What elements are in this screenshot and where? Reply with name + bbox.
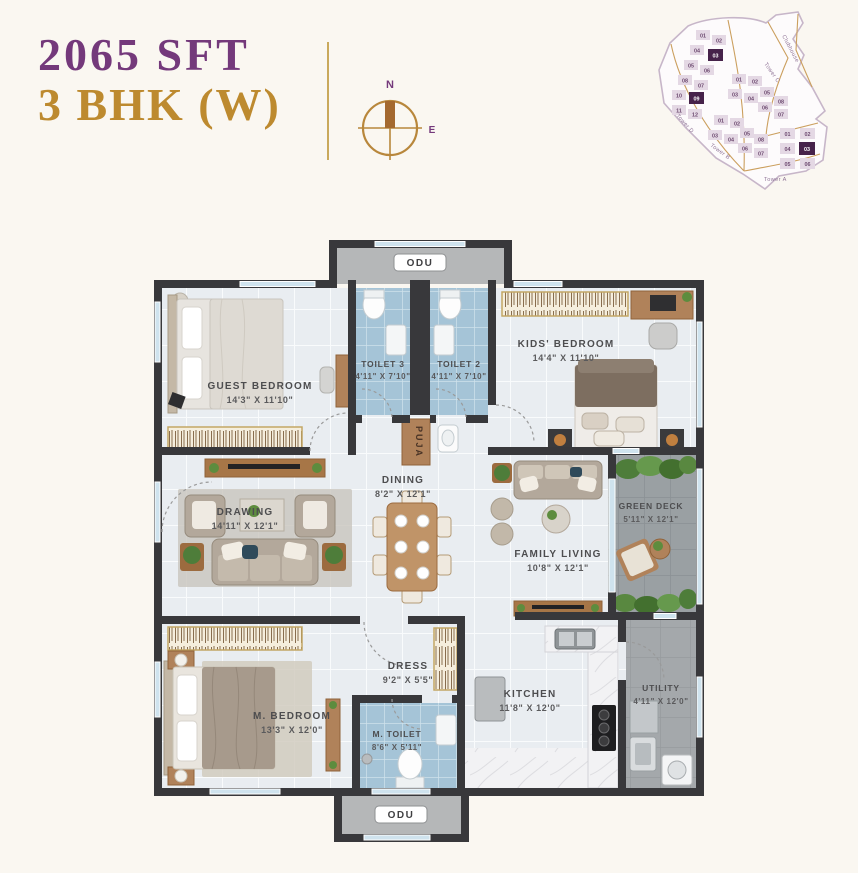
unit-label-highlighted: 03 [804,147,810,153]
console-plant [517,604,525,612]
sink-bowl [577,632,592,646]
master-bedroom-dims: 13'3" X 12'0" [261,725,323,735]
odu-bottom-label: ODU [388,810,415,821]
odu-top-window [375,242,465,247]
console-plant [329,761,337,769]
area-title: 2065 SFT [38,30,281,80]
family-living-dims: 10'8" X 12'1" [527,563,589,573]
tower-a-label: Tower A [764,177,787,183]
guest-pillow [182,307,202,349]
master-lamp [175,770,187,782]
plate [395,567,407,579]
unit-label: 01 [785,132,791,138]
unit-label: 10 [676,94,682,100]
toilet2-label: TOILET 2 [437,359,481,369]
shower-head [362,754,372,764]
header-divider [327,42,329,160]
unit-label: 02 [805,132,811,138]
kids-bedroom-label: KIDS' BEDROOM [518,339,615,350]
plan-title-block: 2065 SFT 3 BHK (W) [38,30,281,129]
kids-laptop [650,295,676,311]
unit-label: 07 [758,152,764,158]
utility-dims: 4'11" X 12'0" [633,697,688,706]
unit-label: 02 [734,122,740,128]
master-headboard [164,661,173,775]
toilet2-basin [434,325,454,355]
unit-label: 01 [736,78,742,84]
master-lamp [175,654,187,666]
master-bottom-window [210,789,280,794]
burner [599,710,609,720]
unit-label: 04 [694,49,700,55]
utility-right-window [697,677,702,737]
pouf [491,523,513,545]
console-plant [209,463,219,473]
toilet3-cistern [364,290,384,298]
sofa-back-cushion [545,465,570,479]
plant [494,465,510,481]
kids-pillow [594,431,624,446]
toilet3-label: TOILET 3 [361,359,405,369]
unit-label: 04 [785,147,791,153]
kids-bedroom-dims: 14'4" X 11'10" [533,353,600,363]
guest-top-window [240,282,315,287]
guest-wardrobe [168,427,302,449]
toilet2-cistern [440,290,460,298]
round-coffee-table [542,505,570,533]
compass-north-bar [385,101,395,128]
kids-wardrobe [502,292,628,316]
unit-label: 07 [698,84,704,90]
console-plant [329,701,337,709]
plate [417,567,429,579]
unit-label: 05 [744,132,750,138]
master-toilet-dims: 8'6" X 5'11" [372,743,422,752]
unit-label: 08 [778,100,784,106]
kids-pillow [616,417,644,432]
green-deck-label: GREEN DECK [619,501,684,511]
plate [395,541,407,553]
plant [183,546,201,564]
console-plant [312,463,322,473]
guest-bedroom-label: GUEST BEDROOM [207,381,312,392]
drawing-label: DRAWING [217,507,274,518]
dining-dims: 8'2" X 12'1" [375,489,431,499]
unit-label: 12 [692,113,698,119]
unit-label-highlighted: 03 [713,54,719,60]
dining-label: DINING [382,475,424,486]
unit-label: 04 [748,97,754,103]
unit-label-highlighted: 09 [694,97,700,103]
green-deck-dims: 5'11" X 12'1" [623,515,678,524]
compass-north-label: N [386,79,394,91]
guest-chair [320,367,334,393]
master-bedroom-label: M. BEDROOM [253,711,331,722]
dining-chair [373,555,387,575]
dress-label: DRESS [388,661,428,672]
master-pillow [177,675,197,715]
unit-label: 01 [700,34,706,40]
console-plant [591,604,599,612]
unit-label: 05 [785,162,791,168]
unit-label: 06 [704,69,710,75]
burner [599,723,609,733]
plate [395,515,407,527]
burner [599,736,609,746]
table-plant [547,510,557,520]
kitchen-label: KITCHEN [504,689,557,700]
guest-bedroom-dims: 14'3" X 11'10" [227,395,294,405]
kids-chair [649,323,677,349]
deck-top-window [613,449,639,454]
mtoilet-odu-window [372,789,430,794]
plate [417,515,429,527]
sink-bowl [559,632,574,646]
drawing-tv [228,464,300,469]
floor-plan: ODU GUEST BEDROOM 14'3" X 11'10" TOILET … [150,237,708,845]
floorplan-page: { "header": { "area": "2065 SFT", "unit_… [0,0,858,873]
master-wardrobe [168,627,302,650]
deck-table-plant [653,541,663,551]
unit-label: 02 [716,39,722,45]
site-key-plan: 01 02 04 03 05 06 08 07 10 09 11 12 01 0… [648,8,854,206]
unit-label: 04 [728,138,734,144]
unit-type-title: 3 BHK (W) [38,80,281,130]
plate [417,541,429,553]
toilet2-dims: 4'11" X 7'10" [431,372,486,381]
puja-label: PUJA [414,426,424,458]
kids-lamp [666,434,678,446]
sofa-pillow-accent [242,545,258,559]
compass-icon: N E [344,72,440,172]
odu-bottom-window [364,835,430,840]
unit-label: 08 [682,79,688,85]
odu-top-label: ODU [407,258,434,269]
deck-right-glazing [697,469,702,604]
kids-right-window [697,322,702,427]
unit-label: 08 [758,138,764,144]
master-pillow [177,721,197,761]
guest-desk [336,355,349,407]
kids-lamp [554,434,566,446]
unit-label: 01 [718,119,724,125]
toilet3-dims: 4'11" X 7'10" [355,372,410,381]
wash-basin-bowl [442,430,454,446]
dining-chair [437,517,451,537]
mtoilet-wc [398,749,422,779]
dining-chair [373,517,387,537]
unit-label: 03 [732,93,738,99]
utility-top-window [654,614,676,619]
unit-label: 06 [762,106,768,112]
washing-machine-door [668,761,686,779]
guest-pillow [182,357,202,399]
armchair-cushion [303,501,327,529]
master-console [326,699,340,771]
green-deck-floor [608,455,696,612]
sofa-pillow-accent [570,467,582,477]
mtoilet-basin [436,715,456,745]
unit-label: 05 [764,91,770,97]
family-tv [532,605,584,609]
family-living-label: FAMILY LIVING [514,549,601,560]
drawing-left-window [155,482,160,542]
unit-label: 06 [805,162,811,168]
unit-label: 05 [688,64,694,70]
master-left-window [155,662,160,717]
compass-east-label: E [429,125,436,136]
toilet3-basin [386,325,406,355]
dining-chair [437,555,451,575]
kitchen-dims: 11'8" X 12'0" [499,703,560,713]
unit-label: 03 [712,134,718,140]
drawing-dims: 14'11" X 12'1" [212,521,279,531]
master-toilet-label: M. TOILET [372,729,421,739]
plant [325,546,343,564]
utility-label: UTILITY [642,683,680,693]
utility-sink-bowl [635,743,651,765]
kids-pillow [582,413,608,429]
unit-label: 06 [742,147,748,153]
unit-label: 07 [778,113,784,119]
kids-desk-plant [682,292,692,302]
dress-dims: 9'2" X 5'5" [383,675,433,685]
unit-label: 02 [752,80,758,86]
pouf [491,498,513,520]
kids-top-window [514,282,562,287]
guest-left-window [155,302,160,362]
deck-sliding-door [609,479,615,592]
fridge [475,677,505,721]
dress-wardrobe [434,628,457,690]
